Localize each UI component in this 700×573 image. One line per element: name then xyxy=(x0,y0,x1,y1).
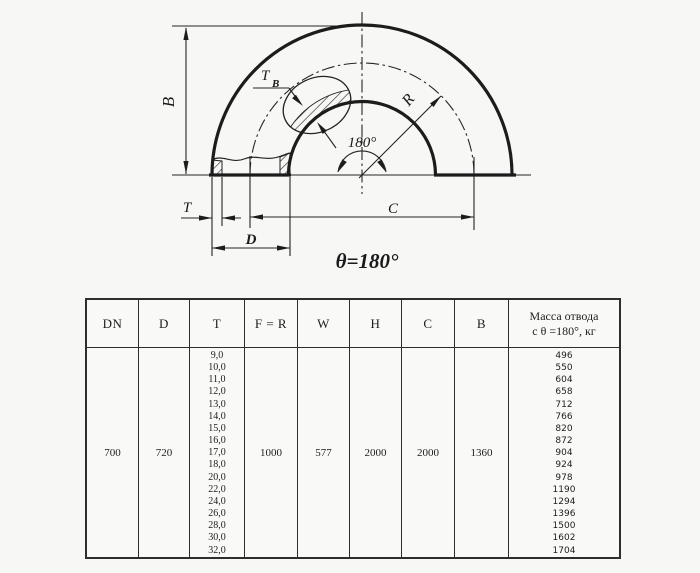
list-value: 766 xyxy=(509,411,619,423)
list-value: 658 xyxy=(509,386,619,398)
arrow-t-left xyxy=(199,215,212,220)
list-value: 712 xyxy=(509,399,619,411)
arrow-t-right xyxy=(222,215,235,220)
col-header-c: C xyxy=(402,300,455,348)
cell-w: 577 xyxy=(298,348,350,557)
cell-fr: 1000 xyxy=(245,348,298,557)
list-value: 17,0 xyxy=(190,447,244,459)
mass-header-line2: с θ =180°, кг xyxy=(532,324,595,339)
list-value: 496 xyxy=(509,350,619,362)
cell-mass-values: 4965506046587127668208729049249781190129… xyxy=(509,348,619,557)
col-header-w: W xyxy=(298,300,350,348)
col-header-t: T xyxy=(190,300,245,348)
arrow-tb-outer xyxy=(292,95,303,106)
list-value: 15,0 xyxy=(190,423,244,435)
spec-table: DN D T F = R W H C B Масса отвода с θ =1… xyxy=(85,298,621,559)
list-value: 16,0 xyxy=(190,435,244,447)
list-value: 978 xyxy=(509,472,619,484)
list-value: 1396 xyxy=(509,508,619,520)
list-value: 28,0 xyxy=(190,520,244,532)
list-value: 1294 xyxy=(509,496,619,508)
list-value: 12,0 xyxy=(190,386,244,398)
cell-t-values: 9,010,011,012,013,014,015,016,017,018,02… xyxy=(190,348,245,557)
col-header-fr: F = R xyxy=(245,300,298,348)
elbow-drawing: B T B R 180° T D C θ=180° xyxy=(0,0,700,292)
list-value: 604 xyxy=(509,374,619,386)
cell-c: 2000 xyxy=(402,348,455,557)
label-r: R xyxy=(398,91,418,110)
cell-b: 1360 xyxy=(455,348,509,557)
list-value: 14,0 xyxy=(190,411,244,423)
list-value: 26,0 xyxy=(190,508,244,520)
col-header-d: D xyxy=(139,300,190,348)
list-value: 1602 xyxy=(509,532,619,544)
list-value: 13,0 xyxy=(190,399,244,411)
list-value: 30,0 xyxy=(190,532,244,544)
col-header-mass: Масса отвода с θ =180°, кг xyxy=(509,300,619,348)
arrow-c-left xyxy=(250,214,263,219)
arrow-c-right xyxy=(461,214,474,219)
label-theta: θ=180° xyxy=(336,249,399,273)
list-value: 24,0 xyxy=(190,496,244,508)
list-value: 10,0 xyxy=(190,362,244,374)
arrow-d-right xyxy=(277,245,290,250)
label-c: C xyxy=(388,201,399,217)
page: { "diagram": { "dim_b": "B", "dim_tb_t":… xyxy=(0,0,700,573)
list-value: 904 xyxy=(509,447,619,459)
list-value: 1190 xyxy=(509,484,619,496)
label-tb-sub: B xyxy=(271,78,279,90)
cell-dn: 700 xyxy=(87,348,139,557)
col-header-b: B xyxy=(455,300,509,348)
arrow-b-bottom xyxy=(183,161,188,174)
list-value: 550 xyxy=(509,362,619,374)
label-b: B xyxy=(159,96,178,107)
list-value: 11,0 xyxy=(190,374,244,386)
arrow-d-left xyxy=(212,245,225,250)
list-value: 1704 xyxy=(509,545,619,557)
col-header-dn: DN xyxy=(87,300,139,348)
list-value: 872 xyxy=(509,435,619,447)
label-d: D xyxy=(245,232,257,248)
mass-header-line1: Масса отвода xyxy=(530,309,599,324)
label-t: T xyxy=(183,200,193,216)
list-value: 9,0 xyxy=(190,350,244,362)
list-value: 924 xyxy=(509,459,619,471)
cell-h: 2000 xyxy=(350,348,402,557)
list-value: 22,0 xyxy=(190,484,244,496)
list-value: 20,0 xyxy=(190,472,244,484)
col-header-h: H xyxy=(350,300,402,348)
list-value: 820 xyxy=(509,423,619,435)
arrow-b-top xyxy=(183,27,188,40)
label-tb: T xyxy=(261,68,271,84)
label-angle: 180° xyxy=(348,135,377,151)
list-value: 18,0 xyxy=(190,459,244,471)
cell-d: 720 xyxy=(139,348,190,557)
list-value: 1500 xyxy=(509,520,619,532)
list-value: 32,0 xyxy=(190,545,244,557)
